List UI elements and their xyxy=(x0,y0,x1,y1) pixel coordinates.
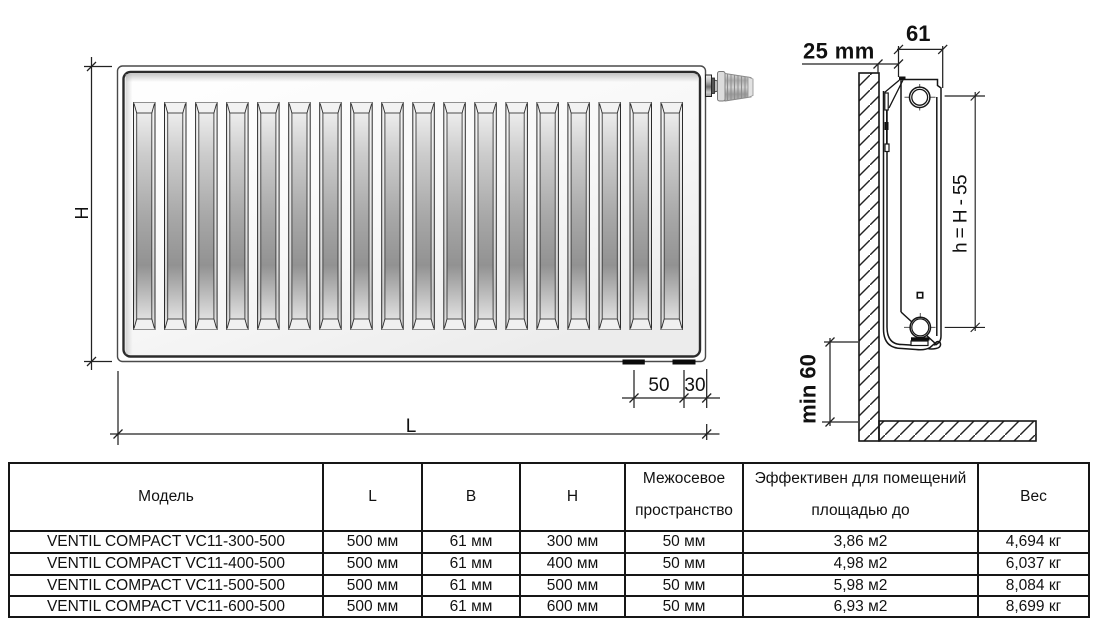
svg-text:min 60: min 60 xyxy=(796,354,821,424)
svg-text:30: 30 xyxy=(684,375,705,396)
svg-text:H: H xyxy=(72,207,92,220)
svg-text:L: L xyxy=(406,416,417,437)
svg-text:50: 50 xyxy=(648,375,669,396)
svg-text:h = H - 55: h = H - 55 xyxy=(951,175,972,253)
svg-text:61: 61 xyxy=(906,21,930,46)
svg-text:25 mm: 25 mm xyxy=(803,39,875,64)
